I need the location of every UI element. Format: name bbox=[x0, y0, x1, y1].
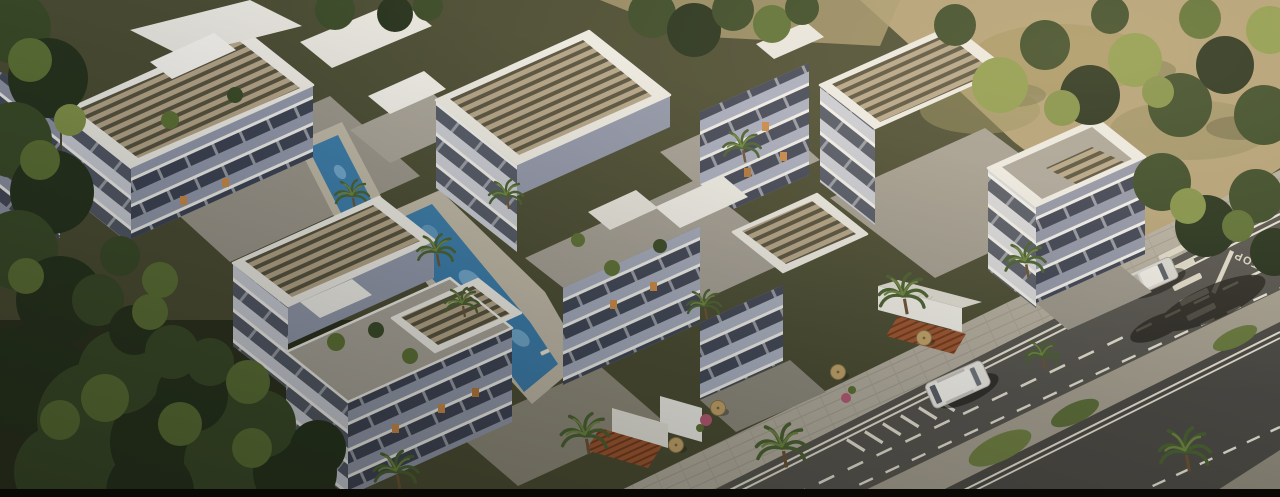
aerial-render-image: STOP bbox=[0, 0, 1280, 497]
render-canvas: STOP bbox=[0, 0, 1280, 497]
shade-overlay bbox=[0, 0, 1280, 497]
letterbox-bar bbox=[0, 489, 1280, 497]
